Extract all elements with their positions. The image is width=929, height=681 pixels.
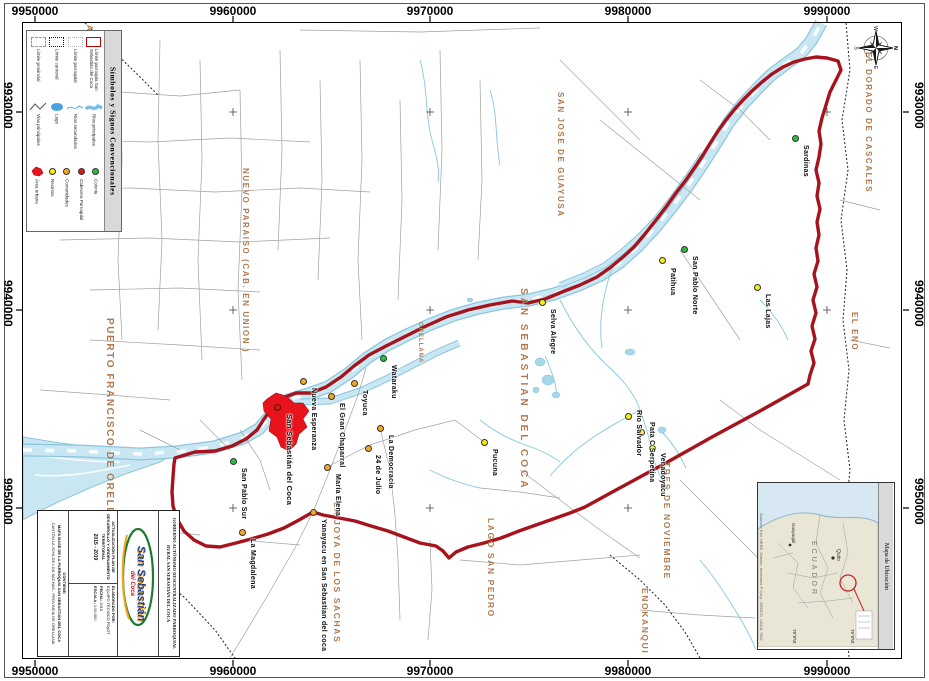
- grid-label-top-4: 9980000: [592, 4, 664, 18]
- inset-coord-right: 76°0'W: [850, 629, 855, 643]
- settlement-marker-toyuca: [351, 380, 358, 387]
- date-label: FECHA:: [99, 586, 104, 601]
- inset-coord-left: 78°0'W: [792, 629, 797, 643]
- settlement-marker-24-de-julio: [365, 445, 372, 452]
- settlement-label-san-pablo-norte: San Pablo Norte: [691, 256, 698, 315]
- legend-item-label: Cabecera Parroquial: [79, 179, 84, 223]
- project-title: ACTUALIZACIÓN PLAN DE DESARROLLO Y ORDEN…: [100, 513, 116, 581]
- settlement-label-la-democracia: La Democracia: [387, 435, 394, 489]
- settlement-label-san-sebastian-del-coca: San Sebastián del Coca: [285, 414, 294, 505]
- settlement-label-venadoyacu: Venadoyacu: [659, 453, 666, 497]
- grid-label-bottom-5: 9990000: [791, 664, 863, 678]
- region-label-el-dorado-de-cascales: EL DORADO DE CASCALES: [864, 52, 873, 193]
- legend-row-lines: Vías principales Lago Ríos secundarios R…: [29, 99, 103, 164]
- svg-text:E: E: [872, 66, 878, 70]
- comunidad-dot-icon: [63, 168, 70, 175]
- inset-country-label: ECUADOR: [810, 541, 817, 597]
- settlement-marker-el-gran-chaparral: [328, 393, 335, 400]
- legend-row-boundaries: Límite provincial Límite cantonal Límite…: [29, 34, 103, 99]
- settlement-marker-patihua: [659, 257, 666, 264]
- settlement-label-san-pablo-sur: San Pablo Sur: [240, 468, 247, 519]
- title-block-fields: ACTUALIZACIÓN PLAN DE DESARROLLO Y ORDEN…: [68, 511, 117, 656]
- credits-cell: ELABORADO POR: EQUIPO TÉCNICO PDyOT FECH…: [69, 584, 117, 656]
- grid-label-bottom-3: 9970000: [394, 664, 466, 678]
- region-label-partial-2: S: [202, 22, 211, 25]
- legend-box: Límite provincial Límite cantonal Límite…: [26, 30, 122, 232]
- settlement-label-patihua: Patihua: [669, 268, 676, 295]
- region-label-lago-san-pedro: LAGO SAN PEDRO: [486, 518, 496, 618]
- lake-icon: [49, 101, 65, 113]
- region-label-puerto-francisco-de-orellana: PUERTO FRANCISCO DE ORELLANA: [104, 318, 115, 542]
- settlement-marker-maria-elena: [324, 464, 331, 471]
- region-label-nuevo-paraiso: NUEVO PARAISO (CAB. EN UNION ): [241, 168, 250, 353]
- urban-area-icon: [29, 165, 45, 178]
- settlement-marker-las-lajas: [754, 284, 761, 291]
- inset-title: Mapa de Ubicación: [878, 483, 893, 649]
- scale-label: ESCALA:: [93, 586, 98, 604]
- elaborated-label: ELABORADO POR:: [111, 586, 116, 654]
- settlement-label-las-lajas: Las Lajas: [764, 294, 771, 329]
- legend-title: Símbolos y Signos Convencionales: [104, 31, 121, 231]
- logo-text-1: San Sebastián: [136, 546, 147, 621]
- location-value: CANTÓN LA JOYA DE LOS SACHAS - PROVINCIA…: [51, 514, 56, 653]
- road-line-icon: [29, 101, 47, 113]
- svg-text:N: N: [892, 46, 898, 50]
- grid-label-bottom-4: 9980000: [592, 664, 664, 678]
- legend-item-label: Ríos secundarios: [73, 114, 78, 158]
- legend-item-label: Lago: [54, 114, 59, 158]
- settlement-label-selva-alegre: Selva Alegre: [549, 309, 556, 354]
- inset-location-map: ECUADOR Quito Guayaquil Sources: Esri, H…: [757, 482, 895, 650]
- settlement-marker-wataraku: [380, 355, 387, 362]
- settlement-marker-la-magdalena: [239, 529, 246, 536]
- colonia-dot-icon: [92, 168, 99, 175]
- grid-label-right-3: 9950000: [912, 478, 926, 525]
- inset-city-label: Guayaquil: [791, 523, 796, 543]
- grid-label-left-1: 9930000: [1, 82, 15, 129]
- contains-value: MAPA BASE DE LA PARROQUIA SAN SEBASTIÁN …: [56, 514, 61, 653]
- legend-item-label: Colonia: [93, 179, 98, 223]
- grid-label-top-1: 9950000: [0, 4, 71, 18]
- settlement-marker-nueva-esperanza: [300, 378, 307, 385]
- region-label-san-sebastian-del-coca: SAN SEBASTIAN DEL COCA: [518, 288, 529, 491]
- settlement-marker-la-democracia: [377, 425, 384, 432]
- svg-text:W: W: [872, 26, 878, 31]
- region-label-la-joya-de-los-sachas: LA JOYA DE LOS SACHAS: [332, 502, 342, 643]
- contains-cell: CONTIENE: MAPA BASE DE LA PARROQUIA SAN …: [39, 511, 68, 656]
- provincial-boundary-icon: [31, 37, 46, 47]
- parish-logo: San Sebastián del Coca: [117, 511, 158, 656]
- contains-label: CONTIENE:: [62, 573, 67, 595]
- settlement-label-pucuna: Pucuna: [491, 449, 498, 476]
- legend-item-label: Límite parroquia San Sebastián del Coca: [88, 49, 99, 93]
- legend-row-points: Área urbana Recintos Comunidades Cabecer…: [29, 164, 103, 229]
- grid-label-left-3: 9950000: [1, 478, 15, 525]
- inset-capital-label: Quito: [835, 549, 841, 561]
- inset-map-area: ECUADOR Quito Guayaquil Sources: Esri, H…: [758, 483, 878, 647]
- title-block-inner: GOBIERNO AUTÓNOMO DESCENTRALIZADO PARROQ…: [39, 511, 178, 656]
- inset-map-canvas: [758, 483, 878, 647]
- scale-value: 1:50.000: [93, 605, 98, 621]
- settlement-marker-san-sebastian-del-coca: [274, 404, 281, 411]
- grid-label-right-2: 9940000: [912, 280, 926, 327]
- legend-item-label: Área urbana: [34, 179, 39, 223]
- settlement-marker-sardinas: [792, 135, 799, 142]
- institution-name: GOBIERNO AUTÓNOMO DESCENTRALIZADO PARROQ…: [158, 511, 178, 656]
- recinto-dot-icon: [49, 168, 56, 175]
- grid-label-bottom-2: 9960000: [197, 664, 269, 678]
- map-sheet: { "grid": { "top": ["9950000","9960000",…: [0, 0, 929, 681]
- region-label-orellana: ORELLANA: [417, 322, 423, 363]
- legend-body: Límite provincial Límite cantonal Límite…: [27, 31, 104, 231]
- settlement-label-sardinas: Sardinas: [802, 145, 809, 177]
- settlement-label-24-de-julio: 24 de Julio: [374, 455, 381, 494]
- settlement-marker-san-pablo-sur: [230, 458, 237, 465]
- inset-attribution: Sources: Esri, HERE, Garmin, Increment P…: [759, 513, 764, 633]
- settlement-label-la-magdalena: La Magdalena: [249, 539, 256, 589]
- cabecera-dot-icon: [78, 168, 85, 175]
- region-label-enokanqui: ENOKANQUI: [640, 588, 650, 654]
- settlement-label-pata-c-serpetina: Pata C Serpetina: [648, 422, 655, 482]
- date-value: 2015: [99, 602, 104, 611]
- grid-label-left-2: 9940000: [1, 280, 15, 327]
- legend-item-label: Límite cantonal: [54, 49, 59, 93]
- project-period: 2015 - 2019: [92, 513, 99, 581]
- legend-item-label: Límite provincial: [36, 49, 41, 93]
- settlement-marker-selva-alegre: [539, 299, 546, 306]
- settlement-marker-yanayacu: [310, 509, 317, 516]
- legend-item-label: Comunidades: [64, 179, 69, 223]
- settlement-label-maria-elena: María Elena: [334, 474, 341, 516]
- settlement-label-yanayacu: Yanayacu en San Sebastian del coca: [320, 519, 327, 651]
- settlement-label-nueva-esperanza: Nueva Esperanza: [310, 388, 317, 450]
- legend-item-label: Vías principales: [36, 114, 41, 158]
- settlement-marker-san-pablo-norte: [681, 246, 688, 253]
- project-cell: ACTUALIZACIÓN PLAN DE DESARROLLO Y ORDEN…: [69, 511, 117, 584]
- grid-label-right-1: 9930000: [912, 82, 926, 129]
- parish-boundary-icon: [68, 37, 83, 47]
- secondary-river-icon: [66, 101, 84, 113]
- legend-item-label: Límite parroquial: [73, 49, 78, 93]
- settlement-marker-pucuna: [481, 439, 488, 446]
- svg-text:S: S: [854, 46, 859, 50]
- grid-label-bottom-1: 9950000: [0, 664, 71, 678]
- region-label-san-jose-de-guayusa: SAN JOSE DE GUAYUSA: [556, 92, 565, 218]
- grid-label-top-5: 9990000: [791, 4, 863, 18]
- legend-item-label: Recintos: [50, 179, 55, 223]
- main-river-icon: [85, 101, 103, 113]
- settlement-marker-rio-salvador: [625, 413, 632, 420]
- region-label-el-eno: EL ENO: [850, 312, 859, 351]
- legend-item-label: Ríos principales: [91, 114, 96, 158]
- parish-limit-red-icon: [86, 37, 101, 47]
- settlement-label-el-gran-chaparral: El Gran Chaparral: [338, 403, 345, 468]
- settlement-label-wataraku: Wataraku: [390, 365, 397, 399]
- cantonal-boundary-icon: [49, 37, 64, 47]
- grid-label-top-2: 9960000: [197, 4, 269, 18]
- title-block: GOBIERNO AUTÓNOMO DESCENTRALIZADO PARROQ…: [37, 510, 180, 657]
- compass-rose-icon: N E S W: [854, 26, 898, 70]
- settlement-label-rio-salvador: Río Salvador: [635, 410, 642, 456]
- grid-label-top-3: 9970000: [394, 4, 466, 18]
- elaborated-value: EQUIPO TÉCNICO PDyOT: [106, 586, 111, 654]
- settlement-label-toyuca: Toyuca: [361, 390, 368, 416]
